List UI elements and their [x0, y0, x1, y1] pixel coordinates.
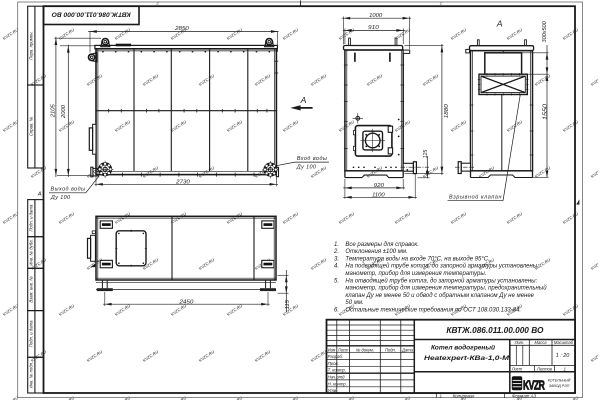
svg-text:КВТЖ.086.011.00.000 ВО: КВТЖ.086.011.00.000 ВО [446, 326, 544, 335]
svg-text:1000: 1000 [369, 13, 383, 19]
svg-text:манометр, прибор для измерения: манометр, прибор для измерения температу… [345, 285, 547, 292]
svg-text:Копировал: Копировал [453, 393, 475, 398]
svg-text:Инв. № подл.: Инв. № подл. [28, 362, 33, 389]
svg-text:1100: 1100 [372, 192, 385, 198]
svg-text:1.: 1. [334, 242, 339, 248]
svg-text:Лист: Лист [511, 366, 523, 371]
svg-text:1550: 1550 [542, 103, 549, 120]
svg-text:2850: 2850 [174, 26, 190, 32]
svg-text:Температура воды на входе 70°С: Температура воды на входе 70°С, на выход… [345, 256, 489, 262]
svg-text:Лит.: Лит. [514, 340, 525, 345]
svg-text:115: 115 [285, 299, 291, 309]
svg-text:2105: 2105 [51, 104, 57, 119]
svg-text:Heatexpert-КВа-1,0-М: Heatexpert-КВа-1,0-М [424, 355, 510, 362]
svg-text:Вход воды: Вход воды [297, 156, 327, 162]
svg-text:Масса: Масса [534, 340, 547, 345]
svg-text:Взам. инв. №: Взам. инв. № [28, 276, 33, 303]
svg-text:На подводящей трубе котла, до: На подводящей трубе котла, до запорной а… [345, 263, 539, 270]
svg-text:Перв. примен.: Перв. примен. [28, 31, 33, 60]
svg-text:клапан Ду не менее 50 и обвод: клапан Ду не менее 50 и обвод с обратным… [345, 293, 534, 299]
svg-text:Т. контр.: Т. контр. [328, 368, 347, 373]
svg-text:Все размеры для справок.: Все размеры для справок. [345, 242, 419, 248]
svg-text:Нач.отд: Нач.отд [328, 375, 346, 380]
svg-text:Подп. и дата: Подп. и дата [28, 320, 33, 348]
svg-text:1: 1 [440, 1, 442, 6]
svg-text:Ду 100: Ду 100 [50, 195, 70, 201]
svg-text:А: А [496, 19, 503, 29]
svg-text:Взрывной клапан: Взрывной клапан [449, 194, 502, 201]
svg-text:ЗАВОД РЭП: ЗАВОД РЭП [549, 384, 570, 388]
svg-text:На отводящей трубе котла, до з: На отводящей трубе котла, до запорной ар… [345, 277, 537, 284]
svg-text:Масштаб: Масштаб [554, 340, 574, 345]
svg-text:Ду 100: Ду 100 [296, 165, 316, 171]
svg-text:А: А [37, 192, 42, 198]
svg-text:Пров.: Пров. [328, 361, 339, 366]
svg-text:А: А [300, 95, 307, 105]
svg-text:50 мм.: 50 мм. [345, 300, 363, 306]
svg-text:Выход воды: Выход воды [51, 187, 86, 193]
svg-text:КОТЕЛЬНЫЙ: КОТЕЛЬНЫЙ [548, 379, 571, 383]
svg-text:1: 1 [564, 366, 566, 371]
svg-text:2.: 2. [333, 249, 339, 255]
svg-text:Котел водогреный: Котел водогреный [431, 344, 495, 352]
svg-text:3.: 3. [334, 256, 339, 262]
svg-text:6.: 6. [334, 308, 339, 314]
svg-text:Справ. №: Справ. № [28, 116, 33, 136]
svg-text:№ докум.: № докум. [356, 347, 374, 352]
svg-text:5.: 5. [334, 278, 339, 284]
svg-text:Подп.: Подп. [385, 347, 396, 352]
svg-text:КВТЖ.086.011.00.000 ВО: КВТЖ.086.011.00.000 ВО [51, 11, 131, 18]
svg-text:920: 920 [374, 183, 385, 189]
svg-text:910: 910 [368, 25, 380, 31]
svg-text:1880: 1880 [444, 103, 450, 118]
svg-text:манометр, прибор для измерения: манометр, прибор для измерения температу… [345, 271, 486, 277]
svg-text:Разраб.: Разраб. [328, 354, 344, 359]
svg-text:Отклонения ±100 мм.: Отклонения ±100 мм. [345, 249, 407, 255]
svg-text:KVZR: KVZR [523, 377, 545, 392]
svg-text:2000: 2000 [61, 104, 67, 119]
svg-text:4.: 4. [334, 264, 339, 270]
svg-text:2730: 2730 [175, 179, 190, 185]
svg-text:300х500: 300х500 [542, 21, 548, 42]
svg-text:Дата: Дата [401, 347, 414, 352]
svg-text:1 : 20: 1 : 20 [556, 353, 570, 359]
svg-text:Подп. и дата: Подп. и дата [28, 204, 33, 232]
svg-text:125: 125 [423, 149, 429, 158]
svg-text:Инв. № дубл.: Инв. № дубл. [28, 239, 33, 265]
svg-text:Листов: Листов [536, 366, 553, 371]
svg-text:Лист: Лист [337, 347, 349, 352]
svg-text:Изм: Изм [328, 347, 336, 352]
svg-text:Утв.: Утв. [328, 388, 338, 393]
svg-text:Н. контр.: Н. контр. [328, 381, 347, 386]
svg-text:2450: 2450 [178, 299, 194, 305]
svg-text:Остальные технические требован: Остальные технические требования по ОСТ … [345, 308, 521, 314]
svg-text:Формат А3: Формат А3 [512, 393, 537, 398]
